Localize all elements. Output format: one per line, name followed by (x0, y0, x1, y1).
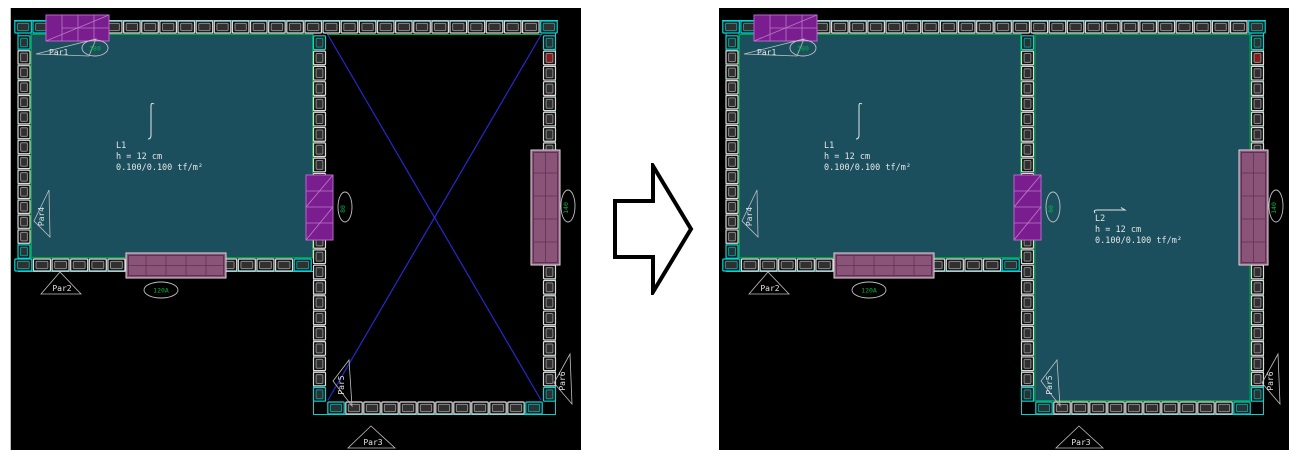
wall-block (1022, 326, 1034, 340)
wall-block (1013, 21, 1030, 33)
wall-block (1022, 265, 1034, 279)
floor-plan-before: Par1Par4Par2Par5Par3Par638080120A140L1h … (11, 8, 581, 450)
wall-block (1231, 21, 1248, 33)
wall-block (364, 402, 380, 414)
wall-block (726, 110, 738, 123)
wall-label-par6: Par6 (1262, 354, 1280, 404)
wall-block (1252, 280, 1264, 294)
wall-block (328, 402, 344, 414)
wall-block (89, 259, 106, 271)
wall-block (726, 200, 738, 213)
wall-block (196, 21, 213, 33)
wall-block (418, 402, 434, 414)
slab-L1-thickness: h = 12 cm (116, 152, 162, 162)
wall-block (726, 96, 738, 109)
wall-block (382, 402, 398, 414)
wall-block (314, 388, 326, 402)
par2-label: Par2 (52, 284, 71, 293)
wall-block (1140, 21, 1157, 33)
wall-label-par5: Par5 (333, 360, 352, 406)
wall-block (726, 51, 738, 64)
wall-block (1122, 21, 1139, 33)
wall-block (922, 21, 939, 33)
wall-block (238, 259, 255, 271)
wall-block (723, 21, 740, 33)
wall-block (400, 402, 416, 414)
wall-block (1049, 21, 1066, 33)
wall-block (741, 259, 758, 271)
tag-top-window-text: 380 (89, 45, 101, 53)
wall-block (1022, 82, 1034, 96)
wall-block (71, 259, 88, 271)
par3-label: Par3 (1071, 438, 1090, 447)
wall-block (544, 372, 556, 386)
wall-block (1252, 66, 1264, 80)
wall-block (1194, 21, 1211, 33)
wall-block (287, 21, 304, 33)
wall-block (1022, 311, 1034, 325)
wall-block (18, 81, 30, 94)
wall-block (984, 259, 1001, 271)
wall-block (18, 170, 30, 183)
slab-L1-region (738, 33, 1022, 259)
wall-block (544, 280, 556, 294)
tag-bottom-window-text: 120A (861, 287, 877, 295)
wall-block (396, 21, 413, 33)
wall-block (1002, 259, 1019, 271)
wall-block (1085, 21, 1102, 33)
wall-block (178, 21, 195, 33)
wall-block (1252, 97, 1264, 111)
wall-block (1252, 112, 1264, 126)
wall-label-par2: Par2 (749, 272, 789, 294)
wall-block (1031, 21, 1048, 33)
wall-block (490, 402, 506, 414)
wall-block (414, 21, 431, 33)
empty-slab-cross (328, 35, 541, 400)
wall-block (1162, 402, 1178, 414)
wall-block (1072, 402, 1088, 414)
par2-label: Par2 (760, 284, 779, 293)
par3-label: Par3 (363, 438, 382, 447)
wall-block (1252, 128, 1264, 142)
opening-bottom-window (126, 253, 226, 278)
wall-block (940, 21, 957, 33)
wall-block (1022, 357, 1034, 371)
wall-block (1022, 296, 1034, 310)
opening-right-window (531, 150, 560, 265)
wall-block (959, 21, 976, 33)
wall-block (454, 402, 470, 414)
slab-L1-load: 0.100/0.100 tf/m² (824, 163, 911, 173)
wall-block (760, 259, 777, 271)
wall-block (314, 97, 326, 111)
wall-label-par3: Par3 (348, 426, 395, 448)
right-block-arrow-icon (615, 166, 691, 292)
slab-L2-load: 0.100/0.100 tf/m² (1095, 236, 1182, 246)
wall-block (1234, 402, 1250, 414)
wall-block (314, 280, 326, 294)
wall-block (946, 259, 963, 271)
wall-block (323, 21, 340, 33)
wall-block (436, 402, 452, 414)
wall-block (18, 51, 30, 64)
before-after-figure: Par1Par4Par2Par5Par3Par638080120A140L1h … (0, 0, 1296, 459)
wall-block (1022, 143, 1034, 157)
wall-block (18, 125, 30, 138)
cad-viewport-before[interactable]: Par1Par4Par2Par5Par3Par638080120A140L1h … (10, 8, 581, 450)
wall-block (544, 296, 556, 310)
wall-block (1252, 51, 1264, 65)
wall-block (1212, 21, 1229, 33)
wall-block (816, 259, 833, 271)
wall-block (544, 357, 556, 371)
wall-block (1252, 326, 1264, 340)
tag-top-window-text: 380 (797, 45, 809, 53)
tag-bottom-window: 120A (852, 282, 886, 298)
wall-label-par2: Par2 (41, 272, 81, 294)
wall-block (18, 155, 30, 168)
wall-block (108, 259, 125, 271)
wall-block (779, 259, 796, 271)
wall-block (995, 21, 1012, 33)
wall-block (726, 140, 738, 153)
wall-block (15, 21, 32, 33)
wall-block (432, 21, 449, 33)
wall-block (544, 128, 556, 142)
wall-block (726, 215, 738, 228)
wall-block (1108, 402, 1124, 414)
wall-block (1252, 342, 1264, 356)
wall-block (314, 143, 326, 157)
wall-block (1198, 402, 1214, 414)
wall-block (314, 342, 326, 356)
wall-block (726, 230, 738, 243)
wall-block (341, 21, 358, 33)
wall-block (723, 259, 740, 271)
wall-block (726, 155, 738, 168)
tag-interior-door: 80 (338, 192, 352, 222)
wall-block (314, 311, 326, 325)
wall-block (977, 21, 994, 33)
wall-block (314, 357, 326, 371)
wall-block (276, 259, 293, 271)
wall-block (1022, 372, 1034, 386)
par1-label: Par1 (49, 48, 68, 57)
wall-block (965, 259, 982, 271)
wall-block (269, 21, 286, 33)
wall-block (544, 342, 556, 356)
wall-block (1022, 388, 1034, 402)
wall-block (472, 402, 488, 414)
wall-block (544, 265, 556, 279)
wall-block (314, 296, 326, 310)
floor-plan-after: Par1Par4Par2Par5Par3Par638080120A140L1h … (719, 8, 1289, 450)
wall-block (1252, 265, 1264, 279)
wall-block (450, 21, 467, 33)
wall-block (526, 402, 542, 414)
wall-block (1054, 402, 1070, 414)
wall-block (1252, 372, 1264, 386)
slab-L1-load: 0.100/0.100 tf/m² (116, 163, 203, 173)
wall-block (544, 36, 556, 50)
wall-block (314, 265, 326, 279)
tag-interior-door-text: 80 (339, 205, 347, 213)
wall-block (314, 82, 326, 96)
tag-interior-door-text: 80 (1047, 205, 1055, 213)
wall-block (160, 21, 177, 33)
wall-block (1022, 51, 1034, 65)
wall-block (504, 21, 521, 33)
tag-right-window-text: 140 (1270, 202, 1278, 214)
wall-block (1104, 21, 1121, 33)
par5-label: Par5 (1045, 375, 1054, 394)
wall-block (544, 97, 556, 111)
wall-block (1252, 388, 1264, 402)
par4-label: Par4 (37, 207, 46, 226)
wall-block (1180, 402, 1196, 414)
wall-block (18, 215, 30, 228)
wall-label-par3: Par3 (1056, 426, 1103, 448)
wall-block (1022, 250, 1034, 264)
wall-block (832, 21, 849, 33)
wall-block (508, 402, 524, 414)
wall-block (18, 66, 30, 79)
wall-block (314, 326, 326, 340)
slab-L1-region (30, 33, 314, 259)
wall-block (726, 66, 738, 79)
wall-block (726, 185, 738, 198)
slab-L2-region (1033, 33, 1252, 402)
wall-block (257, 259, 274, 271)
wall-block (33, 259, 50, 271)
wall-block (544, 311, 556, 325)
tag-right-window-text: 140 (562, 202, 570, 214)
wall-block (468, 21, 485, 33)
wall-block (18, 245, 30, 258)
wall-block (1252, 296, 1264, 310)
tag-bottom-window: 120A (144, 282, 178, 298)
wall-block (294, 259, 311, 271)
wall-block (18, 96, 30, 109)
wall-block (314, 372, 326, 386)
wall-block (18, 36, 30, 49)
wall-block (1022, 280, 1034, 294)
opening-bottom-window (834, 253, 934, 278)
wall-block (314, 112, 326, 126)
wall-block (314, 158, 326, 172)
wall-block (726, 125, 738, 138)
wall-block (1252, 311, 1264, 325)
tag-right-window: 140 (561, 190, 575, 222)
wall-block (1144, 402, 1160, 414)
wall-block (18, 110, 30, 123)
wall-block (52, 259, 69, 271)
wall-block (377, 21, 394, 33)
wall-block (124, 21, 141, 33)
wall-block (214, 21, 231, 33)
wall-block (1252, 82, 1264, 96)
wall-block (1176, 21, 1193, 33)
wall-block (544, 51, 556, 65)
wall-block (1036, 402, 1052, 414)
slab-L1-name: L1 (824, 141, 834, 151)
tag-bottom-window-text: 120A (153, 287, 169, 295)
wall-block (15, 259, 32, 271)
cad-viewport-after[interactable]: Par1Par4Par2Par5Par3Par638080120A140L1h … (719, 8, 1289, 450)
wall-block (544, 326, 556, 340)
transform-arrow (612, 163, 696, 295)
opening-top-window (46, 15, 109, 41)
wall-block (726, 245, 738, 258)
slab-L1-name: L1 (116, 141, 126, 151)
wall-block (1022, 342, 1034, 356)
wall-block (1022, 128, 1034, 142)
wall-label-par6: Par6 (554, 354, 572, 404)
wall-block (544, 388, 556, 402)
wall-block (18, 140, 30, 153)
wall-block (1158, 21, 1175, 33)
wall-block (314, 66, 326, 80)
slab-L2-thickness: h = 12 cm (1095, 225, 1141, 235)
wall-block (726, 170, 738, 183)
wall-block (1126, 402, 1142, 414)
wall-block (251, 21, 268, 33)
wall-block (1067, 21, 1084, 33)
wall-block (314, 250, 326, 264)
par6-label: Par6 (558, 371, 567, 390)
wall-block (314, 36, 326, 50)
wall-block (904, 21, 921, 33)
wall-block (142, 21, 159, 33)
opening-right-window (1239, 150, 1268, 265)
wall-block (726, 81, 738, 94)
par1-label: Par1 (757, 48, 776, 57)
wall-block (541, 21, 558, 33)
wall-block (486, 21, 503, 33)
slab-L2-name: L2 (1095, 214, 1105, 224)
slab-L1-thickness: h = 12 cm (824, 152, 870, 162)
wall-block (868, 21, 885, 33)
wall-block (314, 128, 326, 142)
par4-label: Par4 (745, 207, 754, 226)
wall-block (850, 21, 867, 33)
wall-block (523, 21, 540, 33)
wall-block (1022, 158, 1034, 172)
wall-block (726, 36, 738, 49)
wall-block (1249, 21, 1266, 33)
wall-block (346, 402, 362, 414)
wall-block (544, 82, 556, 96)
wall-block (314, 51, 326, 65)
wall-block (232, 21, 249, 33)
wall-block (544, 66, 556, 80)
wall-block (1252, 357, 1264, 371)
wall-block (1090, 402, 1106, 414)
wall-block (1022, 97, 1034, 111)
wall-block (18, 230, 30, 243)
wall-block (1022, 112, 1034, 126)
wall-block (1022, 66, 1034, 80)
opening-interior-door (306, 175, 333, 240)
wall-block (18, 185, 30, 198)
wall-block (1216, 402, 1232, 414)
opening-top-window (754, 15, 817, 41)
wall-block (1252, 36, 1264, 50)
wall-block (544, 112, 556, 126)
wall-block (797, 259, 814, 271)
opening-interior-door (1014, 175, 1041, 240)
par6-label: Par6 (1266, 371, 1275, 390)
wall-block (359, 21, 376, 33)
wall-block (1022, 36, 1034, 50)
wall-block (305, 21, 322, 33)
wall-block (886, 21, 903, 33)
par5-label: Par5 (337, 375, 346, 394)
tag-right-window: 140 (1269, 190, 1283, 222)
wall-block (18, 200, 30, 213)
